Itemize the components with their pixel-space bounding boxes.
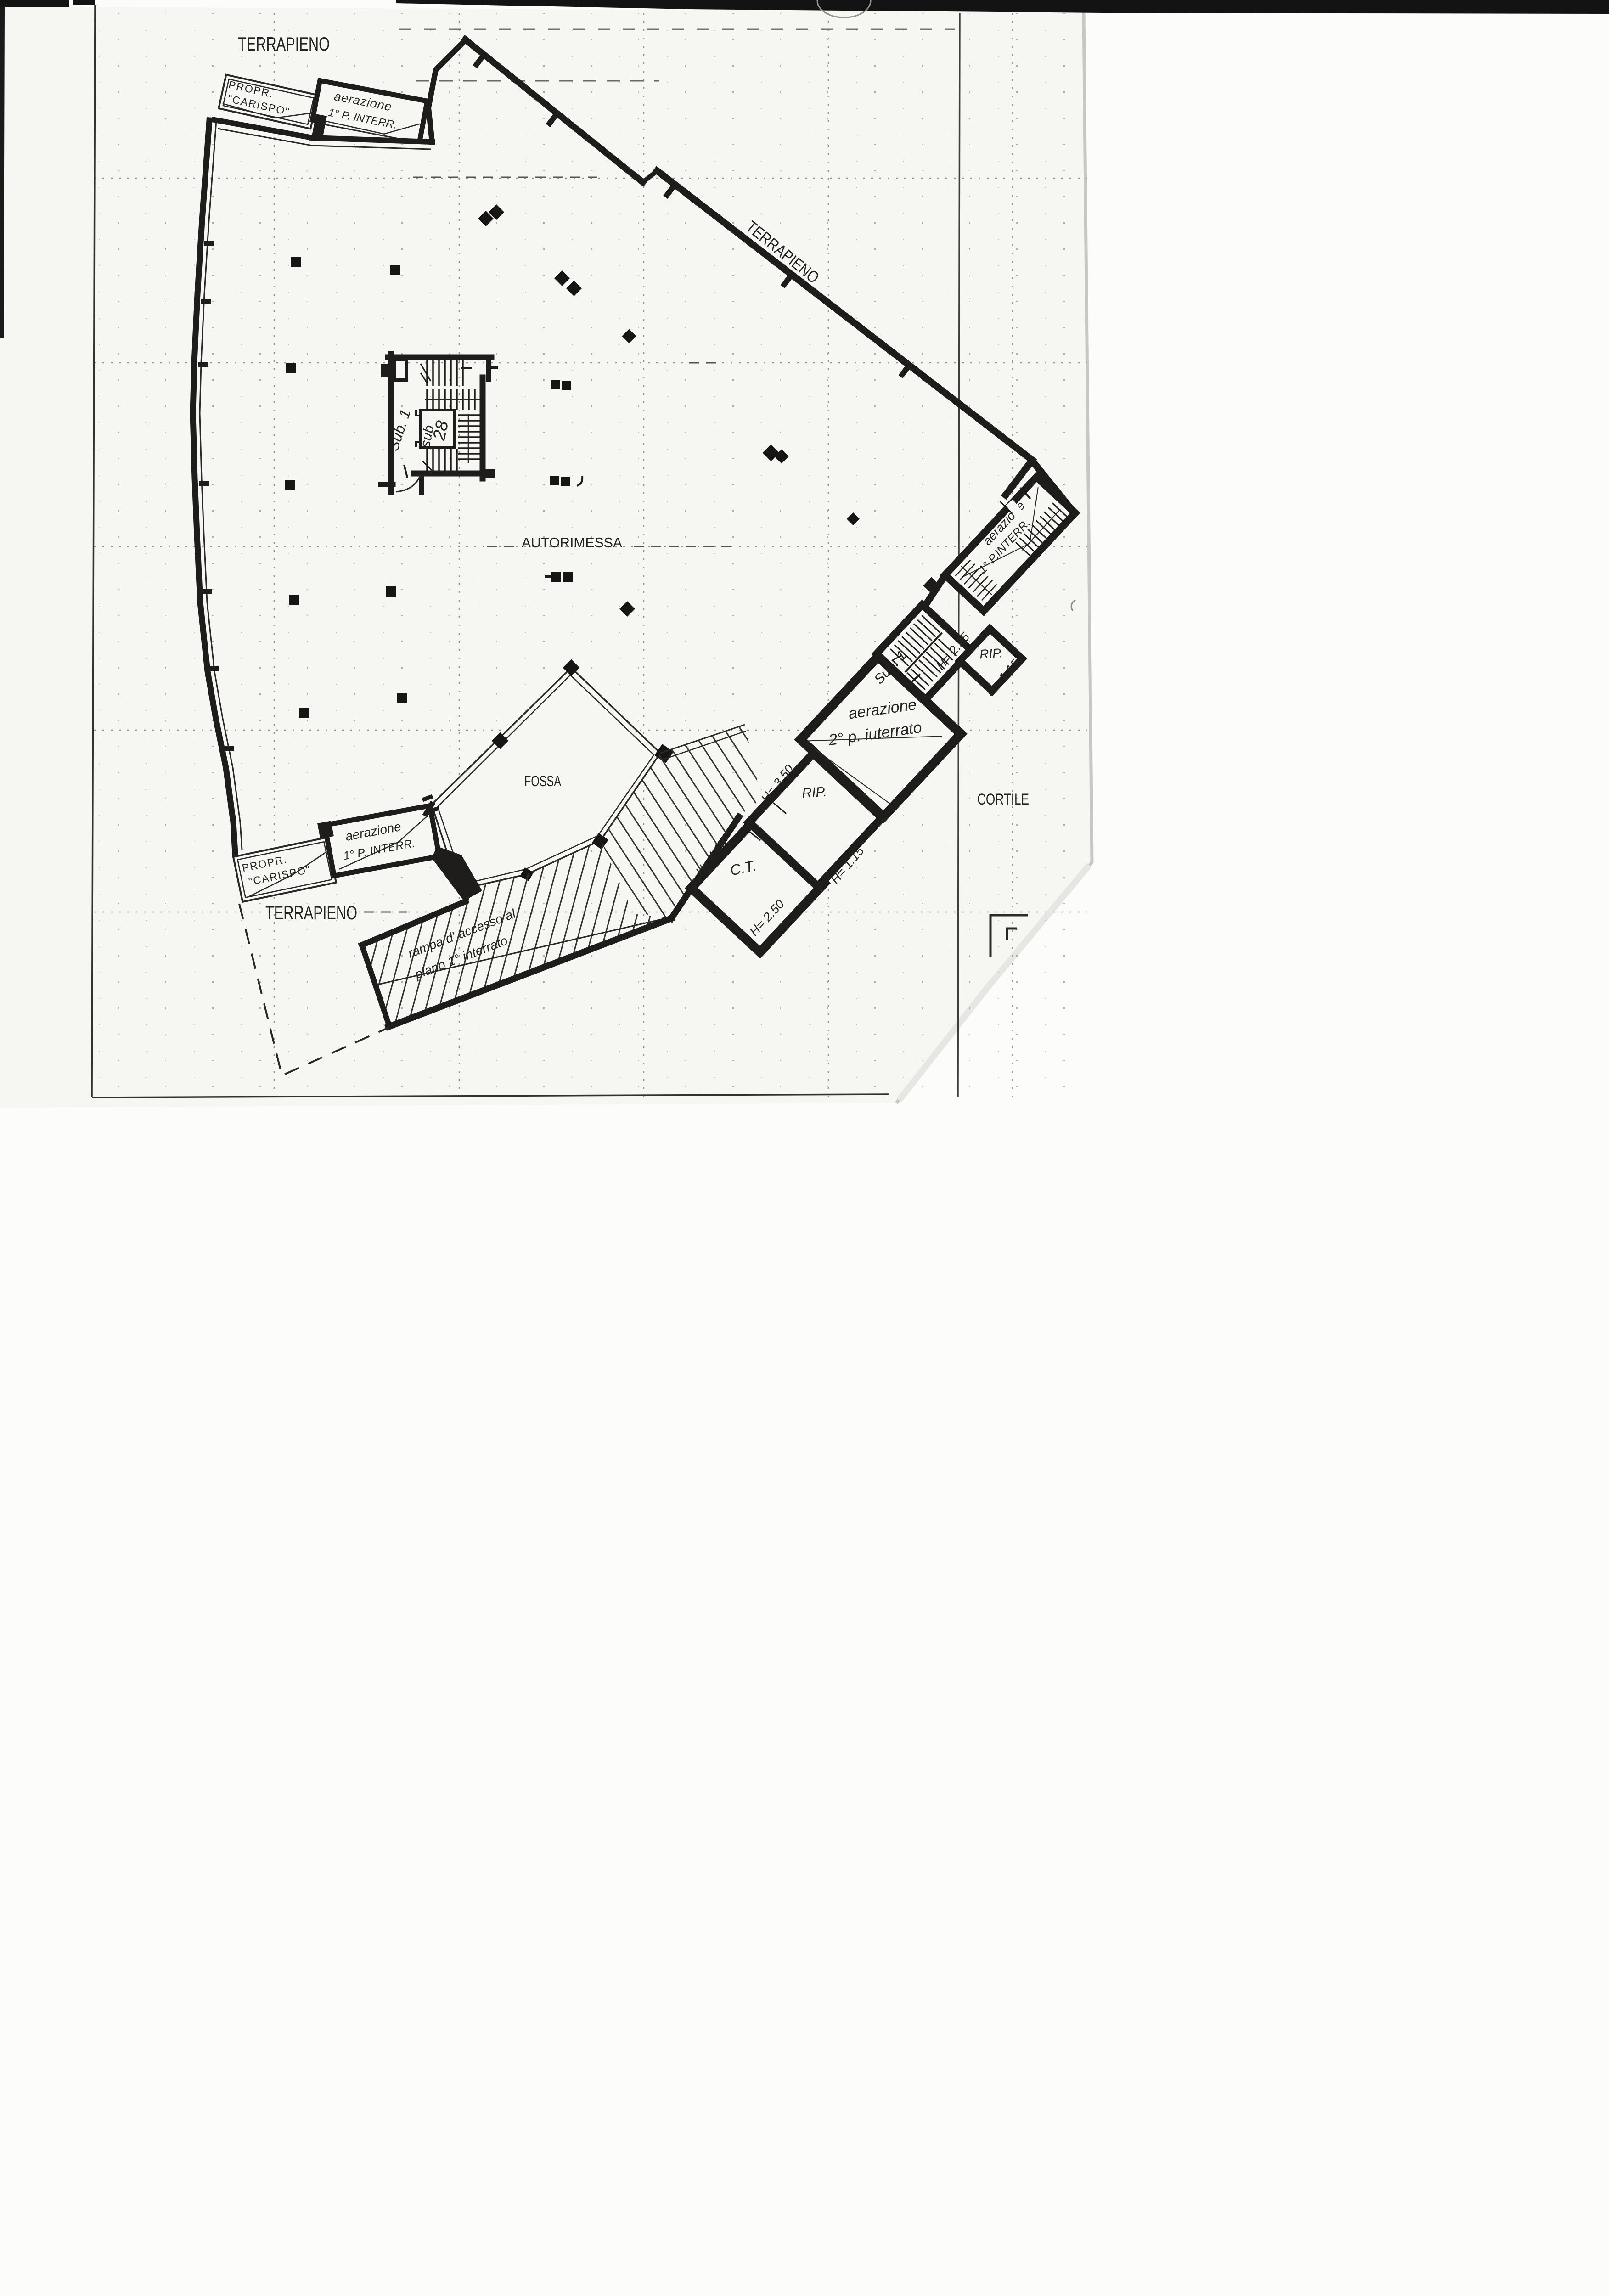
svg-text:28: 28	[429, 419, 452, 442]
svg-text:AUTORIMESSA: AUTORIMESSA	[522, 535, 622, 551]
svg-text:CORTILE: CORTILE	[977, 791, 1029, 808]
svg-text:TERRAPIENO: TERRAPIENO	[238, 33, 330, 55]
svg-text:RIP.: RIP.	[979, 646, 1003, 661]
svg-text:RIP.: RIP.	[801, 784, 827, 801]
svg-text:FOSSA: FOSSA	[524, 773, 561, 789]
svg-text:TERRAPIENO: TERRAPIENO	[265, 902, 357, 923]
